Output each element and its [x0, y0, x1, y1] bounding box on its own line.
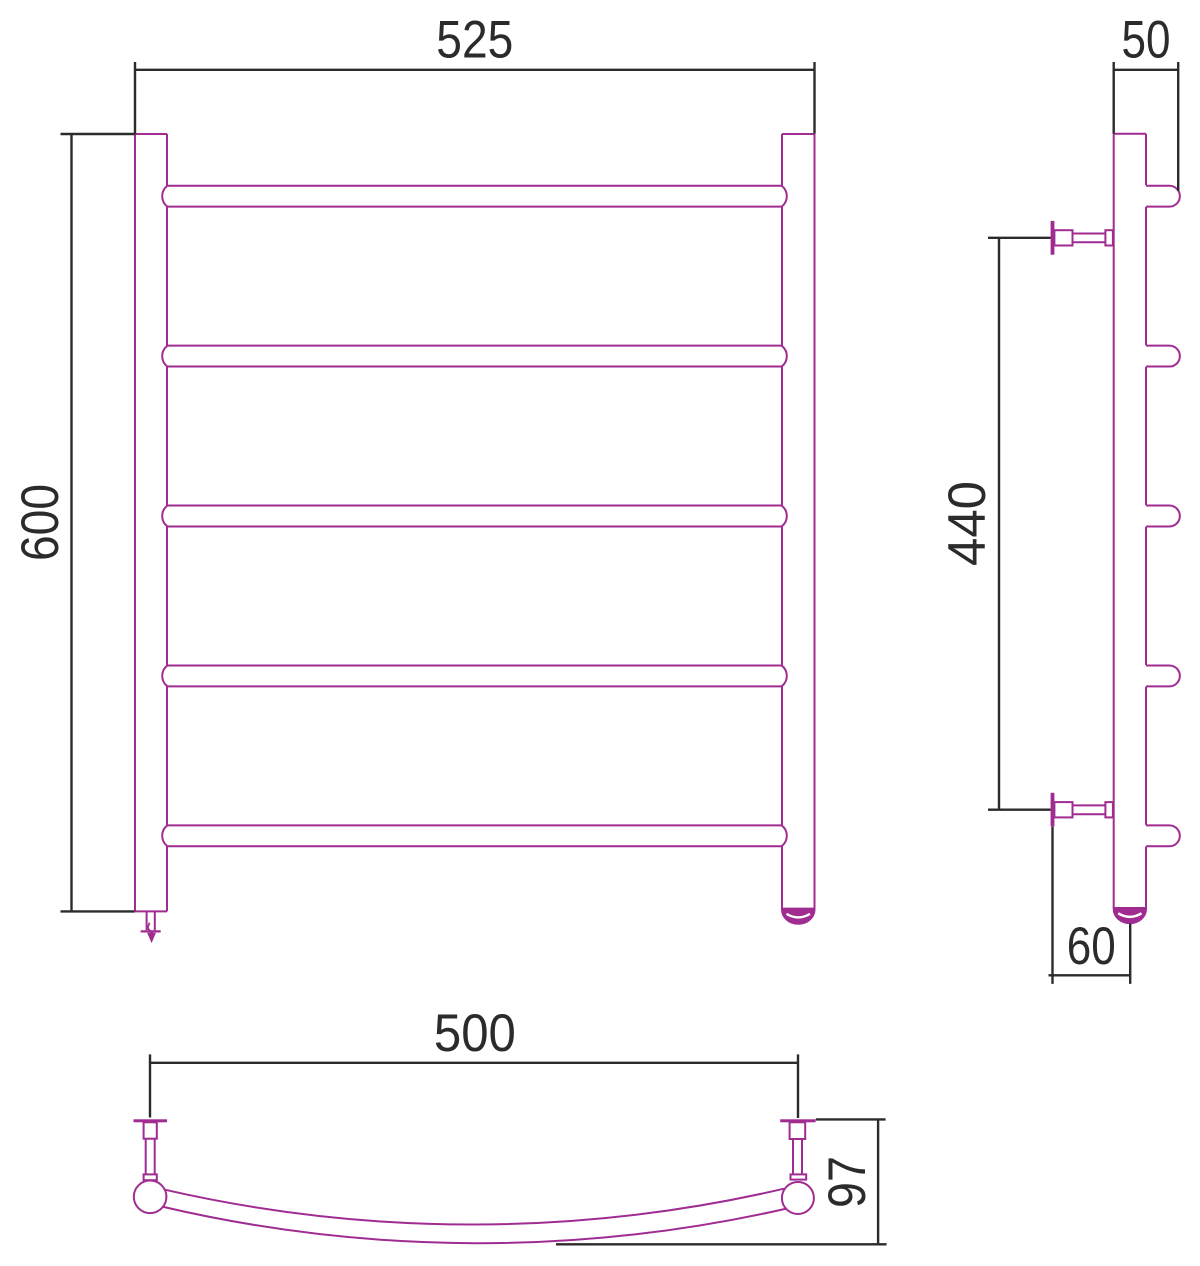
- svg-text:440: 440: [938, 481, 997, 566]
- svg-text:60: 60: [1067, 917, 1116, 976]
- svg-text:500: 500: [434, 1004, 516, 1063]
- svg-text:50: 50: [1122, 11, 1171, 70]
- svg-text:97: 97: [818, 1156, 877, 1208]
- svg-text:600: 600: [11, 484, 70, 561]
- svg-text:525: 525: [436, 11, 513, 70]
